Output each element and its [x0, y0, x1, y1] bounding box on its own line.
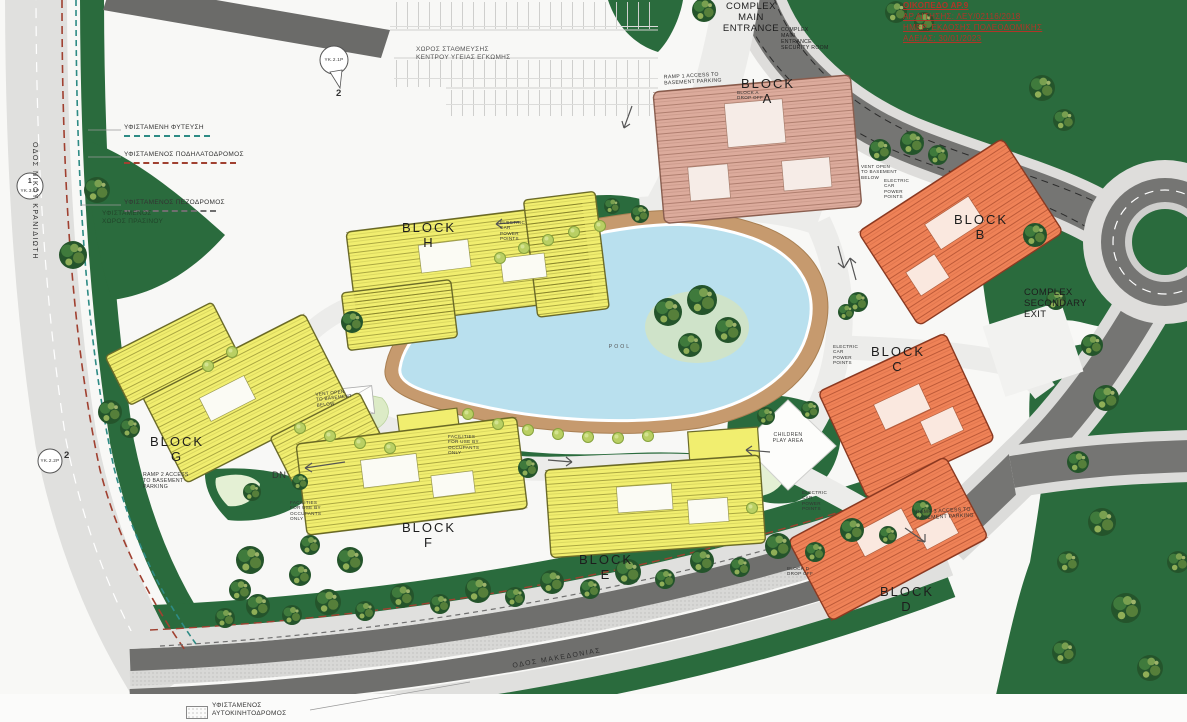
- legend-swatch-bike-path: [124, 162, 236, 164]
- bottom-margin: [0, 694, 1187, 722]
- site-plan-drawing: [0, 0, 1187, 722]
- block-A: [653, 75, 862, 224]
- legend-swatch-planting: [124, 135, 210, 137]
- legend-swatch-motorway: [186, 706, 208, 719]
- legend-swatch-footpath: [124, 210, 216, 212]
- site-plan-canvas: ΥΦΙΣΤΑΜΕΝΗ ΦΥΤΕΥΣΗ ΥΦΙΣΤΑΜΕΝΟΣ ΠΟΔΗΛΑΤΟΔ…: [0, 0, 1187, 722]
